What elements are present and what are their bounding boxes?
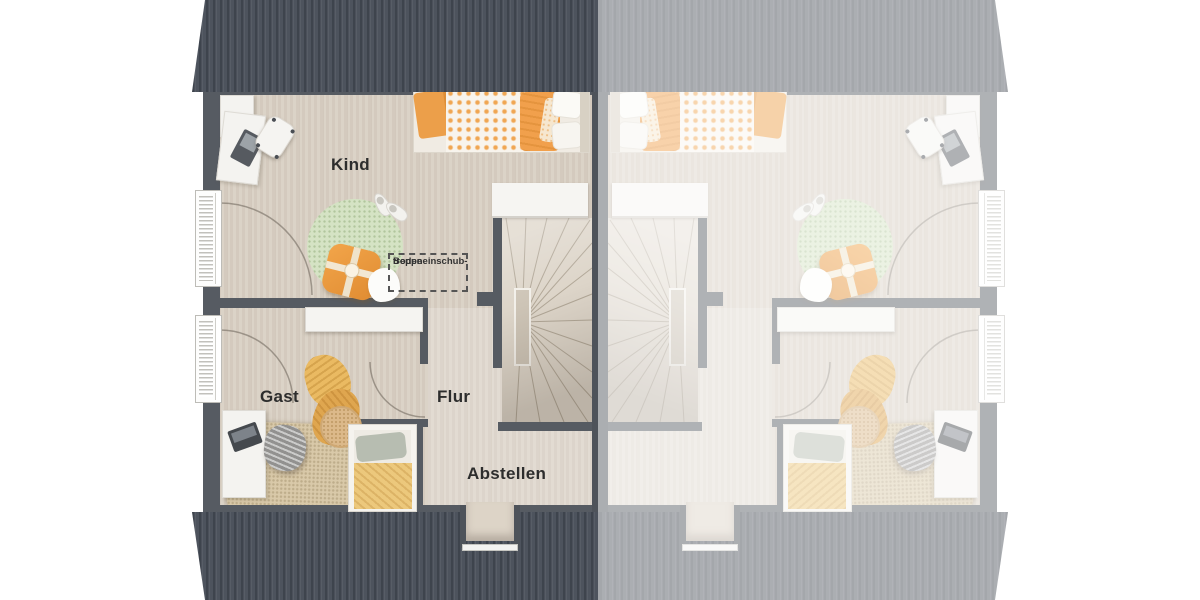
stair-enclosure-wall bbox=[498, 422, 592, 431]
radiator bbox=[199, 321, 213, 397]
attic-hatch-label: treppe bbox=[393, 256, 422, 269]
floorplan-canvas: Bodeneinschub- treppe Kind Gast Flur Abs… bbox=[0, 0, 1200, 600]
yellow-blanket bbox=[354, 463, 412, 509]
window-glass bbox=[215, 318, 221, 400]
window bbox=[195, 315, 222, 403]
dormer-wall bbox=[460, 505, 466, 548]
dormer-window bbox=[466, 502, 514, 541]
window-glass bbox=[215, 193, 221, 284]
staircase-shading bbox=[502, 218, 592, 422]
pillow bbox=[551, 121, 583, 151]
laptop-screen bbox=[231, 425, 257, 443]
stair-enclosure-wall bbox=[477, 292, 502, 306]
desk bbox=[222, 410, 266, 498]
child-bed bbox=[413, 87, 590, 153]
patterned-duvet bbox=[446, 89, 524, 152]
bed-headboard bbox=[580, 88, 589, 152]
radiator bbox=[199, 196, 213, 281]
dormer-sill bbox=[462, 544, 518, 551]
wardrobe bbox=[305, 307, 423, 332]
room-label-kind: Kind bbox=[331, 155, 370, 175]
roof-slope-top bbox=[192, 0, 600, 92]
window bbox=[195, 190, 222, 287]
room-label-abstellen: Abstellen bbox=[467, 464, 546, 484]
pillow bbox=[355, 431, 407, 462]
stair-landing bbox=[492, 183, 588, 218]
unit-left: Bodeneinschub- treppe Kind Gast Flur Abs… bbox=[190, 0, 600, 600]
fade-overlay bbox=[598, 0, 1012, 600]
room-label-gast: Gast bbox=[260, 387, 299, 407]
guest-bed bbox=[348, 424, 417, 512]
attic-hatch-outline: Bodeneinschub- treppe bbox=[388, 253, 468, 292]
pillow bbox=[550, 89, 583, 119]
room-label-flur: Flur bbox=[437, 387, 470, 407]
roof-slope-bottom bbox=[192, 512, 600, 600]
dormer-wall bbox=[514, 505, 520, 548]
